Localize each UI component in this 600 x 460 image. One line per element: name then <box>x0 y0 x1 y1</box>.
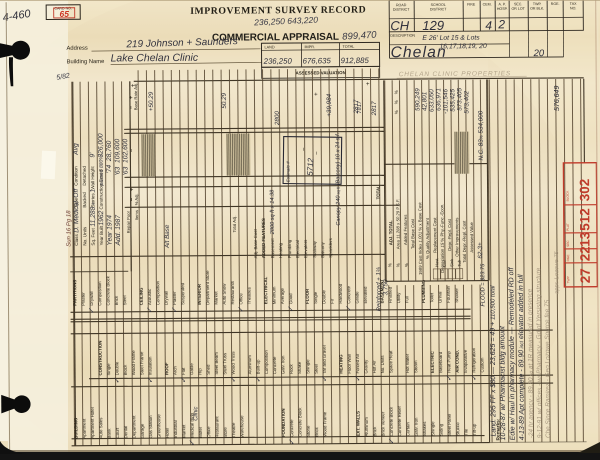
svg-text:Space Heat: Space Heat <box>388 350 393 374</box>
svg-text:Shingle: Shingle <box>305 359 310 374</box>
svg-text:1: 1 <box>90 189 97 193</box>
svg-text:E 26′ Lot 15 & Lots: E 26′ Lot 15 & Lots <box>422 35 480 42</box>
svg-text:%: % <box>394 90 399 94</box>
svg-text:Class: Class <box>74 234 79 246</box>
svg-text:Forced Air: Forced Air <box>355 353 360 373</box>
svg-text:Heat Pump: Heat Pump <box>446 351 451 373</box>
svg-text:Avg: Avg <box>73 143 80 156</box>
svg-text:Plumbing: Plumbing <box>287 239 292 258</box>
svg-text:Double: Double <box>114 361 119 375</box>
svg-text:Auto Show: Auto Show <box>222 283 227 305</box>
svg-text:IMPROVEMENT SURVEY RECORD: IMPROVEMENT SURVEY RECORD <box>190 4 366 16</box>
svg-text:Tilt-up: Tilt-up <box>472 423 477 436</box>
svg-text:Area 11,288 x 50.29 P.S.F: Area 11,288 x 50.29 P.S.F. <box>395 199 400 250</box>
svg-text:−: − <box>301 147 307 151</box>
svg-text:Baseboard: Baseboard <box>438 351 443 373</box>
svg-text:′63 102,600: ′63 102,600 <box>122 138 129 175</box>
svg-text:Department: Department <box>131 415 136 439</box>
svg-text:SEC: SEC <box>566 240 570 247</box>
svg-text:Assessed Value: Assessed Value <box>469 222 474 253</box>
svg-text:A. P.: A. P. <box>498 2 505 6</box>
svg-text:Steam: Steam <box>413 360 418 373</box>
svg-text:TWP: TWP <box>566 276 570 283</box>
svg-text:10-28-87 w/ Pharmacist bldg: 10-28-87 w/ Pharmacist bldg amount <box>499 325 507 440</box>
svg-text:✓: ✓ <box>170 306 179 313</box>
svg-text:✓: ✓ <box>444 374 453 381</box>
svg-text:Total Depr.-Repl. Cost: Total Depr.-Repl. Cost <box>462 220 467 263</box>
svg-text:+: + <box>314 92 320 96</box>
svg-text:Warehouse: Warehouse <box>239 415 244 438</box>
svg-text:FLOOD = $23.75: FLOOD = $23.75 <box>480 263 486 307</box>
svg-text:✓: ✓ <box>387 438 396 445</box>
svg-text:Curtain: Curtain <box>405 422 410 437</box>
svg-text:512: 512 <box>577 208 592 231</box>
svg-text:Market: Market <box>213 291 218 305</box>
svg-text:Steel Truss: Steel Truss <box>222 352 227 375</box>
svg-text:Shower: Shower <box>454 287 459 302</box>
svg-text:−: − <box>314 151 320 155</box>
svg-text:%: % <box>387 263 392 267</box>
svg-text:Concrete Block: Concrete Block <box>389 406 394 436</box>
svg-text:2800: 2800 <box>274 111 281 127</box>
svg-text:Greenhouse: Greenhouse <box>156 414 161 439</box>
svg-text:Elevated: Elevated <box>363 286 368 304</box>
svg-text:Host.: Host. <box>434 258 439 267</box>
svg-text:BUILDING: BUILDING <box>73 417 78 439</box>
svg-text:Canopy 240 sq ft (Balcony) 10: Canopy 240 sq ft (Balcony) 10 x 24 s.f. <box>335 133 342 226</box>
svg-text:TAX: TAX <box>570 2 577 6</box>
svg-text:Steel Frame: Steel Frame <box>139 351 144 375</box>
svg-text:Year Built: Year Built <box>99 225 104 245</box>
svg-text:PARTITIONS: PARTITIONS <box>72 280 77 306</box>
svg-text:Insulation: Insulation <box>148 356 153 375</box>
svg-text:Apartment: Apartment <box>82 418 87 439</box>
svg-text:Items: Items <box>134 210 139 220</box>
svg-text:Industrial: Industrial <box>173 420 178 438</box>
svg-text:Edie w/ Haul in pharmacy m: Edie w/ Haul in pharmacy module — Remode… <box>508 267 516 441</box>
svg-text:236,250: 236,250 <box>263 57 293 66</box>
svg-text:TWP.: TWP. <box>533 2 542 6</box>
svg-text:RGE: RGE <box>566 254 570 261</box>
svg-text:PLUMBING: PLUMBING <box>421 279 426 303</box>
svg-text:ELECTRICAL: ELECTRICAL <box>263 276 268 304</box>
svg-text:D. Medical: D. Medical <box>73 201 80 233</box>
svg-text:Concrete Block: Concrete Block <box>297 407 302 437</box>
svg-text:% Quality Adjustment: % Quality Adjustment <box>425 217 430 259</box>
svg-text:FOUNDATION: FOUNDATION <box>281 408 286 437</box>
svg-text:Concrete: Concrete <box>289 419 294 437</box>
svg-text:CEM.: CEM. <box>483 2 492 6</box>
svg-text:✓: ✓ <box>286 306 295 313</box>
svg-text:Basement: Basement <box>270 238 275 259</box>
svg-text:%: % <box>404 263 409 267</box>
svg-text:Dental: Dental <box>123 426 128 439</box>
svg-text:Bank: Bank <box>107 428 112 439</box>
svg-text:1962: 1962 <box>98 210 105 225</box>
svg-text:ADDED FEATURES: ADDED FEATURES <box>261 218 266 258</box>
svg-text:✓: ✓ <box>87 307 96 314</box>
svg-text:Stairway: Stairway <box>312 240 317 258</box>
svg-text:676,635: 676,635 <box>303 56 332 65</box>
svg-text:Total Adj.: Total Adj. <box>232 215 237 232</box>
svg-text:Toilet: Toilet <box>429 292 434 303</box>
svg-text:Plaster: Plaster <box>172 291 177 305</box>
svg-text:HOSP.: HOSP. <box>497 7 508 11</box>
svg-text:Composition: Composition <box>155 280 160 305</box>
svg-text:appr. Lozowe 75: appr. Lozowe 75 <box>554 251 560 294</box>
svg-text:Composition: Composition <box>97 281 102 306</box>
svg-text:Shed: Shed <box>206 364 211 375</box>
svg-text:Hardwood: Hardwood <box>338 283 343 303</box>
svg-text:Wall Height: Wall Height <box>90 166 95 190</box>
svg-text:Year 1974: Year 1974 <box>106 215 113 246</box>
svg-text:✓: ✓ <box>228 376 237 383</box>
svg-text:Custom: Custom <box>480 357 485 372</box>
svg-text:+50.29: +50.29 <box>148 91 155 111</box>
svg-text:573,405: 573,405 <box>456 87 463 110</box>
svg-text:Lav.: Lav. <box>442 260 447 267</box>
svg-text:22: 22 <box>578 246 593 261</box>
svg-text:−: − <box>129 148 135 152</box>
svg-text:Sun 16 Pg 18: Sun 16 Pg 18 <box>66 210 72 247</box>
svg-text:DESCRIPTION: DESCRIPTION <box>390 34 415 38</box>
svg-text:Condition: Condition <box>73 166 78 186</box>
svg-text:Brick: Brick <box>114 295 119 306</box>
svg-text:−: − <box>130 197 136 201</box>
svg-text:−: − <box>129 105 135 109</box>
svg-text:1989 Cost Index 1.001 % x: 1989 Cost Index 1.001 % x Base Cost <box>417 202 423 275</box>
svg-text:27: 27 <box>578 268 593 283</box>
svg-text:Address: Address <box>66 46 87 52</box>
svg-text:Estimate #: Estimate # <box>285 161 290 182</box>
svg-text:Shakes: Shakes <box>422 421 427 436</box>
svg-text:4: 4 <box>485 18 492 32</box>
svg-text:Building Name: Building Name <box>67 59 105 65</box>
svg-text:Lake Chelan Clinic: Lake Chelan Clinic <box>111 52 199 65</box>
svg-text:Tile: Tile <box>463 428 468 435</box>
svg-text:129: 129 <box>422 18 444 33</box>
svg-text:Brick: Brick <box>314 426 319 437</box>
svg-text:✓: ✓ <box>287 439 296 446</box>
svg-text:Minimum: Minimum <box>271 286 276 304</box>
svg-text:✓: ✓ <box>187 439 196 446</box>
svg-text:9-12-91 w/ offices - w/ Pharma: 9-12-91 w/ offices - w/ Pharmacy - Gd of… <box>535 267 543 438</box>
svg-text:Department Store: Department Store <box>205 270 210 305</box>
svg-text:Theatres: Theatres <box>247 286 252 304</box>
svg-text:FIRE: FIRE <box>467 3 476 7</box>
svg-text:′74 28,760: ′74 28,760 <box>106 140 113 173</box>
svg-text:DISTRICT: DISTRICT <box>393 8 410 12</box>
svg-text:65: 65 <box>59 9 69 19</box>
svg-text:Steel: Steel <box>122 295 127 305</box>
svg-text:Stucco: Stucco <box>455 422 460 436</box>
svg-text:Shake: Shake <box>297 361 302 374</box>
svg-text:Single: Single <box>313 291 318 304</box>
svg-text:Utility: Utility <box>396 292 401 303</box>
svg-text:Electrical: Electrical <box>295 240 300 258</box>
svg-text:Motel: Motel <box>198 427 203 438</box>
svg-text:Fountain: Fountain <box>446 285 451 303</box>
svg-text:Plaster: Plaster <box>81 292 86 306</box>
svg-text:Replacement Cost: Replacement Cost <box>432 217 437 253</box>
svg-text:Built-up: Built-up <box>255 359 260 374</box>
svg-text:Heating: Heating <box>278 242 283 258</box>
svg-text:573,402: 573,402 <box>463 90 470 113</box>
svg-text:+: + <box>366 81 372 85</box>
svg-text:Galv. Iron: Galv. Iron <box>414 417 419 436</box>
svg-text:HEATING: HEATING <box>338 354 343 374</box>
svg-text:Gas Station: Gas Station <box>148 415 153 438</box>
svg-text:N.C. 83% 534,000: N.C. 83% 534,000 <box>477 110 484 160</box>
svg-text:-24 hr agency - 89.90 sq at 1: -24 hr agency - 89.90 sq at 1R measured … <box>527 288 535 438</box>
svg-text:Court: Court <box>115 427 120 438</box>
svg-text:Added Features: Added Features <box>403 215 408 246</box>
svg-text:Other Improvements: Other Improvements <box>454 218 459 257</box>
svg-text:Drywall: Drywall <box>89 291 94 305</box>
svg-text:Tar and Gravel: Tar and Gravel <box>322 345 327 374</box>
svg-text:DISTRICT: DISTRICT <box>430 7 447 11</box>
svg-text:Hot Air: Hot Air <box>372 360 377 374</box>
svg-text:ROOF: ROOF <box>164 362 169 375</box>
svg-text:ROAD: ROAD <box>396 3 407 7</box>
svg-text:ELECTRIC: ELECTRIC <box>430 350 435 373</box>
svg-text:✓: ✓ <box>320 375 329 382</box>
svg-text:✓: ✓ <box>469 374 478 381</box>
svg-text:Sink: Sink <box>449 259 454 267</box>
svg-text:Aluminum: Aluminum <box>247 355 252 375</box>
svg-text:Rock: Rock <box>289 363 294 374</box>
svg-text:9′: 9′ <box>89 152 96 158</box>
svg-text:Store: Store <box>223 427 228 438</box>
svg-text:326,000: 326,000 <box>97 133 104 158</box>
svg-text:912,885: 912,885 <box>341 56 370 65</box>
svg-text:%: % <box>394 100 399 104</box>
svg-text:Flat: Flat <box>181 367 186 375</box>
svg-text:Reinforced + 1⅛: Reinforced + 1⅛ <box>376 267 382 311</box>
svg-text:′63 109,600: ′63 109,600 <box>114 139 121 176</box>
svg-text:Restaurants: Restaurants <box>230 280 235 304</box>
svg-text:✓: ✓ <box>145 307 154 314</box>
svg-text:Auto Sales: Auto Sales <box>98 417 103 439</box>
svg-text:SEC.: SEC. <box>514 2 522 6</box>
svg-text:FLOOR: FLOOR <box>305 288 310 304</box>
svg-text:Stone: Stone <box>306 425 311 437</box>
svg-text:OR BLK.: OR BLK. <box>530 7 544 11</box>
svg-text:20: 20 <box>533 48 545 59</box>
svg-text:Detached: Detached <box>82 166 87 186</box>
svg-text:Siding: Siding <box>439 423 444 436</box>
svg-text:Office: Office <box>206 426 211 438</box>
svg-text:Depr.-Repl. Cost: Depr.-Repl. Cost <box>447 218 452 251</box>
svg-text:Add. 1987: Add. 1987 <box>115 215 122 247</box>
svg-text:TOTAL: TOTAL <box>376 185 381 200</box>
svg-text:Steel Panel: Steel Panel <box>447 414 452 436</box>
svg-text:SCHOOL: SCHOOL <box>431 3 446 7</box>
svg-text:Sq. Feet: Sq. Feet <box>91 228 96 246</box>
svg-text:✓: ✓ <box>145 377 154 384</box>
svg-text:CONSTRUCTION: CONSTRUCTION <box>98 341 103 376</box>
svg-text:Clinic: Clinic <box>193 407 199 421</box>
svg-text:Gravity: Gravity <box>363 359 368 374</box>
svg-text:✓: ✓ <box>179 376 188 383</box>
svg-text:Apartment Hotel: Apartment Hotel <box>90 407 95 438</box>
svg-text:50.29: 50.29 <box>221 92 228 108</box>
svg-text:Sprinklers: Sprinklers <box>328 237 333 257</box>
svg-text:Hotel: Hotel <box>165 428 170 438</box>
svg-text:Composition: Composition <box>264 350 269 375</box>
svg-text:Brick Veneer: Brick Veneer <box>380 411 385 436</box>
svg-text:Steel: Steel <box>314 364 319 374</box>
svg-text:Total Base Cost: Total Base Cost <box>410 218 415 249</box>
svg-text:Tub: Tub <box>457 259 462 267</box>
svg-text:7817: 7817 <box>357 100 363 113</box>
svg-text:Restaurant: Restaurant <box>214 416 219 438</box>
svg-text:Single: Single <box>106 363 111 376</box>
svg-text:Double: Double <box>321 289 326 303</box>
svg-text:Galv. Iron: Galv. Iron <box>280 355 285 374</box>
svg-text:Garage: Garage <box>140 423 145 438</box>
svg-text:passed 880%: passed 880% <box>99 155 105 187</box>
svg-text:NO.: NO. <box>570 6 576 10</box>
svg-text:Land: 295 FF x $80.— 23,625 =: Land: 295 FF x $80.— 23,625 = 49 + 110,5… <box>489 285 497 437</box>
svg-text:11,288 #: 11,288 # <box>90 202 97 227</box>
svg-text:Backed: Backed <box>82 192 87 208</box>
svg-text:Office: Office <box>238 293 243 305</box>
svg-text:Refrigeration: Refrigeration <box>471 347 476 372</box>
svg-text:BLOCK: BLOCK <box>566 190 570 202</box>
svg-text:Steel Beam: Steel Beam <box>214 352 219 375</box>
svg-text:CH: CH <box>390 18 410 33</box>
svg-text:+: + <box>130 187 136 191</box>
svg-text:AIR COND.: AIR COND. <box>455 350 460 373</box>
svg-text:Suspended: Suspended <box>180 282 185 305</box>
svg-text:Off: Off <box>73 188 80 198</box>
svg-text:Floor Wall: Floor Wall <box>347 354 352 373</box>
svg-text:3,750: 3,750 <box>382 279 389 295</box>
svg-text:LAND: LAND <box>264 45 274 49</box>
svg-text:5712: 5712 <box>306 157 316 176</box>
svg-text:Acoustic: Acoustic <box>147 288 152 305</box>
svg-text:Good: Good <box>288 293 293 304</box>
svg-text:IMPR.: IMPR. <box>304 45 315 49</box>
svg-text:CEILING: CEILING <box>139 287 144 305</box>
svg-text:Block: Block <box>123 364 128 375</box>
svg-text:Wood Truss: Wood Truss <box>230 351 235 375</box>
svg-text:Brick: Brick <box>372 426 377 437</box>
svg-text:OR LOT: OR LOT <box>511 7 525 11</box>
svg-text:Che Since Ramirez - Geo Loz: Che Since Ramirez - Geo Lozowe Source fe… <box>544 299 552 438</box>
svg-text:Wood Frame: Wood Frame <box>131 350 136 376</box>
svg-text:Concrete Block: Concrete Block <box>105 275 110 305</box>
svg-text:Concrete: Concrete <box>346 285 351 303</box>
svg-text:899,470: 899,470 <box>342 30 378 43</box>
svg-text:Urinal: Urinal <box>438 292 443 303</box>
svg-text:62-3+: 62-3+ <box>477 242 484 259</box>
svg-text:Alt Base: Alt Base <box>164 224 171 249</box>
svg-text:PLAT: PLAT <box>566 223 570 231</box>
svg-text:TOTAL: TOTAL <box>342 45 354 49</box>
svg-text:Grade: Grade <box>355 291 360 304</box>
svg-text:Arch: Arch <box>172 365 177 375</box>
svg-text:Shingle: Shingle <box>430 421 435 436</box>
svg-text:Drywall: Drywall <box>164 291 169 305</box>
svg-text:No. Units: No. Units <box>380 355 385 374</box>
svg-text:Evaporative: Evaporative <box>463 349 468 373</box>
svg-text:✓: ✓ <box>253 376 262 383</box>
svg-text:ADJ. TOTAL: ADJ. TOTAL <box>388 220 393 245</box>
svg-text:Adj. Base Cost: Adj. Base Cost <box>253 229 258 259</box>
svg-text:Chelan: Chelan <box>390 44 446 61</box>
svg-text:Concrete: Concrete <box>272 356 277 374</box>
svg-text:Hot Water: Hot Water <box>405 353 410 373</box>
svg-text:%: % <box>394 110 399 114</box>
svg-text:✓: ✓ <box>112 377 121 384</box>
svg-text:Theatre: Theatre <box>231 422 236 438</box>
svg-text:+: + <box>131 83 137 87</box>
svg-text:✓: ✓ <box>353 375 362 382</box>
svg-text:Repair Poor: Repair Poor <box>126 210 131 233</box>
svg-text:Aluminum: Aluminum <box>364 417 369 437</box>
svg-text:13: 13 <box>577 231 592 247</box>
svg-text:302: 302 <box>577 179 592 202</box>
svg-text:+: + <box>129 95 135 99</box>
svg-text:Fir: Fir <box>330 298 335 304</box>
svg-text:✓: ✓ <box>344 305 353 312</box>
svg-text:Full: Full <box>404 296 409 303</box>
svg-text:2817: 2817 <box>371 101 378 117</box>
svg-text:No. Units: No. Units <box>82 226 87 246</box>
svg-text:%: % <box>396 263 401 267</box>
svg-text:RGE.: RGE. <box>551 2 560 6</box>
svg-text:+39,984: +39,984 <box>326 93 333 116</box>
svg-text:4-13-89 Apt complete - 89.90: 4-13-89 Apt complete - 89.90 incl elevat… <box>518 274 526 440</box>
svg-text:✓: ✓ <box>236 306 245 313</box>
svg-text:2: 2 <box>497 17 505 31</box>
svg-text:Concrete Relief: Concrete Relief <box>397 405 402 436</box>
svg-text:Gable: Gable <box>189 363 194 375</box>
svg-text:576,649: 576,649 <box>554 86 561 111</box>
svg-text:Market: Market <box>181 424 186 438</box>
svg-text:2800 sq ft x 14.38: 2800 sq ft x 14.38 <box>270 189 276 235</box>
svg-text:Elevators: Elevators <box>303 239 308 258</box>
svg-text:Average: Average <box>280 287 285 304</box>
svg-text:590,249: 590,249 <box>414 88 421 111</box>
svg-text:Wood Frame: Wood Frame <box>322 411 327 437</box>
svg-text:Balcony: Balcony <box>320 241 325 257</box>
svg-text:INTERIOR: INTERIOR <box>197 283 202 305</box>
svg-text:EXT. WALLS: EXT. WALLS <box>355 411 360 437</box>
svg-text:Hip: Hip <box>197 368 202 375</box>
